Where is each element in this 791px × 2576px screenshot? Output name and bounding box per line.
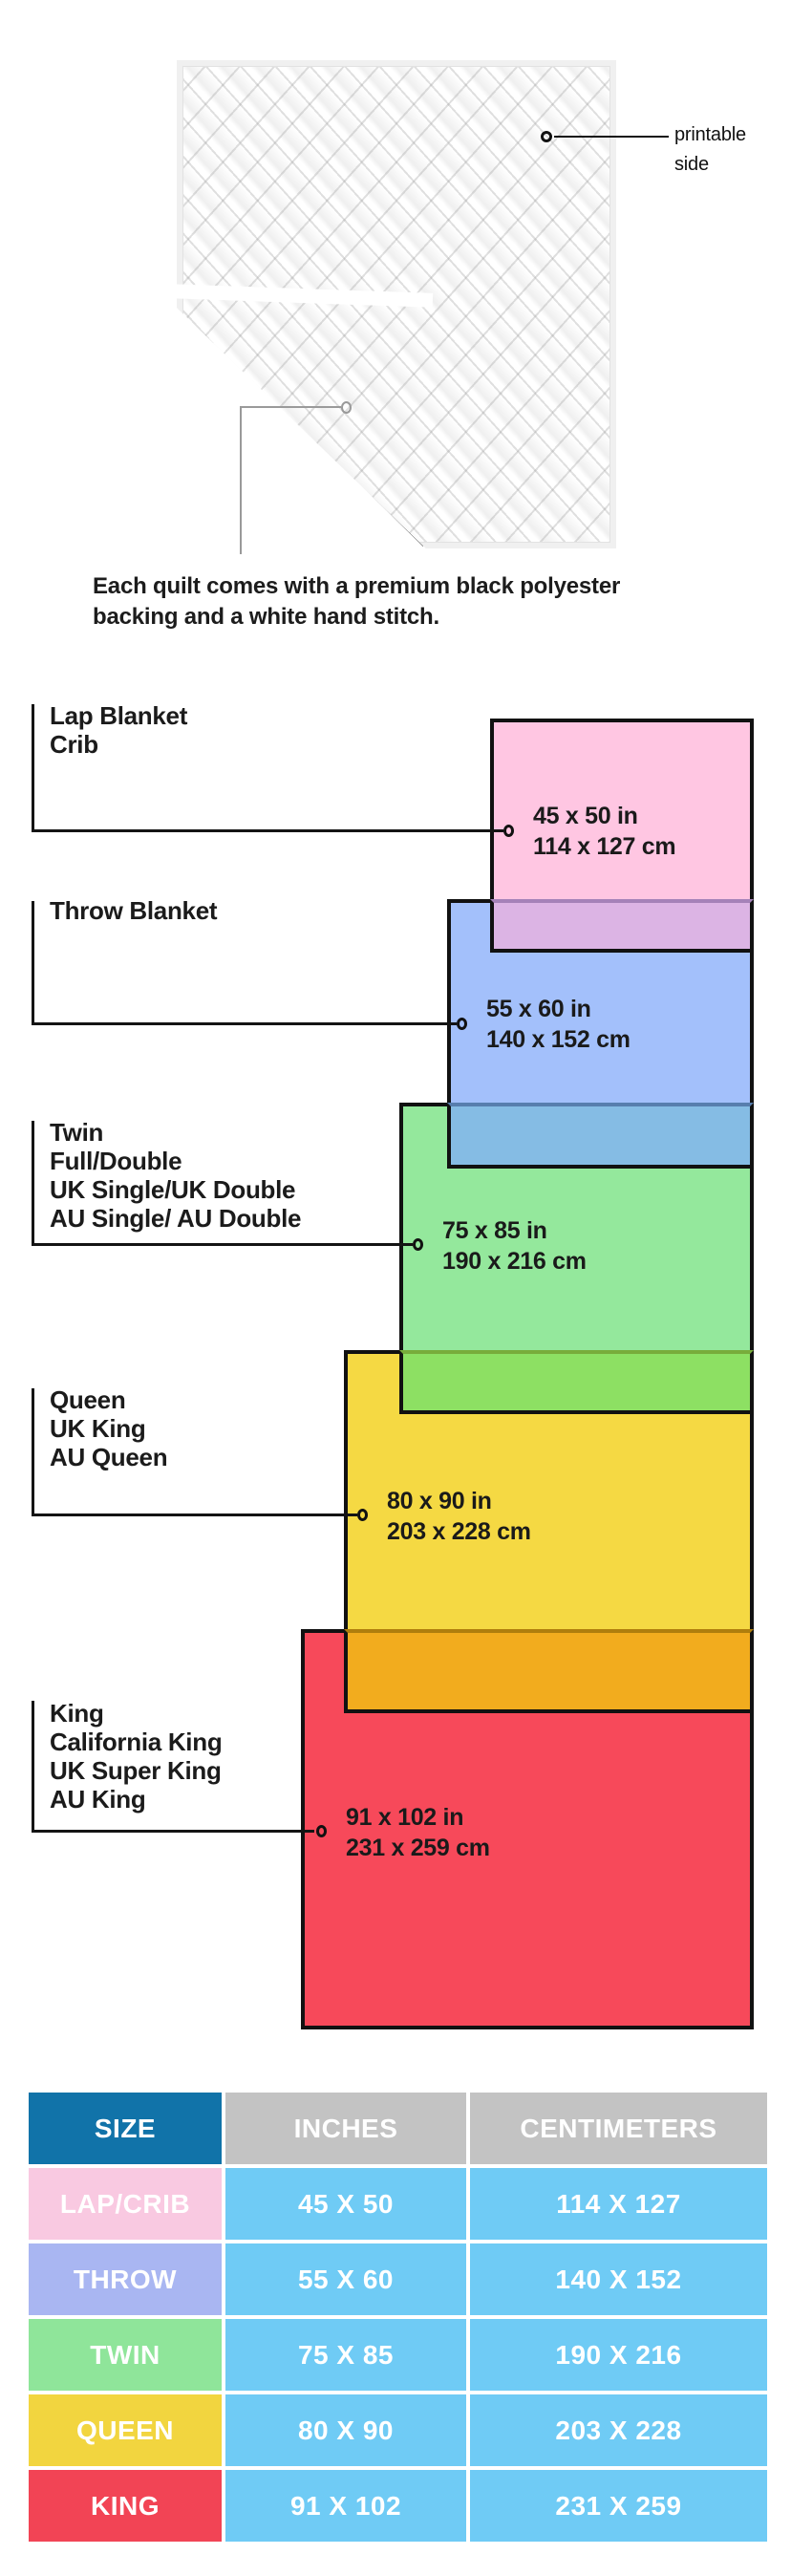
- callout-vline-queen: [32, 1388, 34, 1515]
- table-row-queen-inches: 80 X 90: [225, 2394, 466, 2466]
- table-header-size: SIZE: [29, 2093, 222, 2164]
- size-dims-cm: 203 x 228 cm: [387, 1516, 531, 1547]
- quilt-caption: Each quilt comes with a premium black po…: [93, 571, 620, 632]
- table-row-king-size: KING: [29, 2470, 222, 2542]
- size-label-line: Queen: [50, 1385, 167, 1414]
- quilt-caption-line1: Each quilt comes with a premium black po…: [93, 571, 620, 602]
- size-dims-inches: 45 x 50 in: [533, 801, 675, 831]
- table-row-king-cm: 231 X 259: [470, 2470, 767, 2542]
- size-label-line: King: [50, 1699, 222, 1728]
- size-label-line: AU Queen: [50, 1443, 167, 1471]
- size-dims-cm: 190 x 216 cm: [442, 1246, 587, 1277]
- overlap-band-twin-queen: [399, 1350, 754, 1414]
- table-row-lap-crib-cm: 114 X 127: [470, 2168, 767, 2240]
- table-row-lap-crib-inches: 45 X 50: [225, 2168, 466, 2240]
- callout-hline-queen: [32, 1513, 357, 1516]
- size-dims-twin: 75 x 85 in 190 x 216 cm: [442, 1215, 587, 1277]
- callout-vline-twin: [32, 1121, 34, 1246]
- table-row-king-inches: 91 X 102: [225, 2470, 466, 2542]
- size-dims-inches: 91 x 102 in: [346, 1802, 490, 1833]
- size-label-line: Crib: [50, 730, 187, 759]
- size-dims-throw: 55 x 60 in 140 x 152 cm: [486, 994, 631, 1055]
- black-backing-leader-vertical: [240, 406, 242, 554]
- table-row-lap-crib-size: LAP/CRIB: [29, 2168, 222, 2240]
- size-label-line: AU King: [50, 1785, 222, 1814]
- callout-vline-throw: [32, 901, 34, 1024]
- callout-marker-throw-icon: [457, 1018, 467, 1030]
- callout-vline-king: [32, 1701, 34, 1832]
- black-backing-marker-icon: [341, 401, 352, 414]
- overlap-band-lap-throw: [490, 899, 754, 953]
- size-label-line: UK Super King: [50, 1756, 222, 1785]
- size-label-line: Full/Double: [50, 1147, 301, 1175]
- size-label-twin: Twin Full/Double UK Single/UK Double AU …: [50, 1118, 301, 1233]
- callout-marker-king-icon: [316, 1825, 327, 1837]
- size-label-line: UK Single/UK Double: [50, 1175, 301, 1204]
- size-dims-cm: 140 x 152 cm: [486, 1024, 631, 1055]
- table-header-inches: INCHES: [225, 2093, 466, 2164]
- printable-side-label-line1: printable: [674, 120, 746, 150]
- printable-side-label: printable side: [674, 120, 746, 180]
- printable-side-marker-icon: [541, 131, 552, 142]
- size-table: SIZE INCHES CENTIMETERS LAP/CRIB 45 X 50…: [29, 2093, 767, 2542]
- table-row-throw-size: THROW: [29, 2243, 222, 2315]
- quilt-caption-line2: backing and a white hand stitch.: [93, 602, 620, 633]
- size-label-lap-crib: Lap Blanket Crib: [50, 701, 187, 759]
- table-row-throw-inches: 55 X 60: [225, 2243, 466, 2315]
- table-row-throw-cm: 140 X 152: [470, 2243, 767, 2315]
- size-label-line: California King: [50, 1728, 222, 1756]
- size-dims-cm: 231 x 259 cm: [346, 1833, 490, 1863]
- size-label-line: AU Single/ AU Double: [50, 1204, 301, 1233]
- size-dims-lap-crib: 45 x 50 in 114 x 127 cm: [533, 801, 675, 862]
- table-row-queen-cm: 203 X 228: [470, 2394, 767, 2466]
- table-row-queen-size: QUEEN: [29, 2394, 222, 2466]
- overlap-band-queen-king: [344, 1629, 754, 1713]
- table-header-centimeters: CENTIMETERS: [470, 2093, 767, 2164]
- size-dims-inches: 55 x 60 in: [486, 994, 631, 1024]
- table-row-twin-size: TWIN: [29, 2319, 222, 2391]
- quilt-size-chart-infographic: printable side Each quilt comes with a p…: [0, 0, 791, 2576]
- callout-hline-twin: [32, 1243, 413, 1246]
- printable-side-leader-line: [554, 136, 669, 138]
- callout-vline-lap: [32, 704, 34, 830]
- overlap-band-throw-twin: [447, 1103, 754, 1169]
- callout-hline-lap: [32, 829, 503, 832]
- size-dims-inches: 75 x 85 in: [442, 1215, 587, 1246]
- size-dims-king: 91 x 102 in 231 x 259 cm: [346, 1802, 490, 1863]
- size-label-queen: Queen UK King AU Queen: [50, 1385, 167, 1471]
- callout-hline-throw: [32, 1022, 457, 1025]
- size-dims-inches: 80 x 90 in: [387, 1486, 531, 1516]
- callout-marker-lap-icon: [503, 825, 514, 837]
- size-label-line: Throw Blanket: [50, 896, 217, 925]
- callout-hline-king: [32, 1830, 314, 1833]
- callout-marker-twin-icon: [413, 1238, 423, 1251]
- size-label-line: Lap Blanket: [50, 701, 187, 730]
- black-backing-leader-horizontal: [240, 406, 341, 408]
- size-label-throw: Throw Blanket: [50, 896, 217, 925]
- size-dims-cm: 114 x 127 cm: [533, 831, 675, 862]
- size-label-king: King California King UK Super King AU Ki…: [50, 1699, 222, 1814]
- size-label-line: Twin: [50, 1118, 301, 1147]
- table-row-twin-cm: 190 X 216: [470, 2319, 767, 2391]
- printable-side-label-line2: side: [674, 150, 746, 180]
- table-row-twin-inches: 75 X 85: [225, 2319, 466, 2391]
- size-label-line: UK King: [50, 1414, 167, 1443]
- size-dims-queen: 80 x 90 in 203 x 228 cm: [387, 1486, 531, 1547]
- callout-marker-queen-icon: [357, 1509, 368, 1521]
